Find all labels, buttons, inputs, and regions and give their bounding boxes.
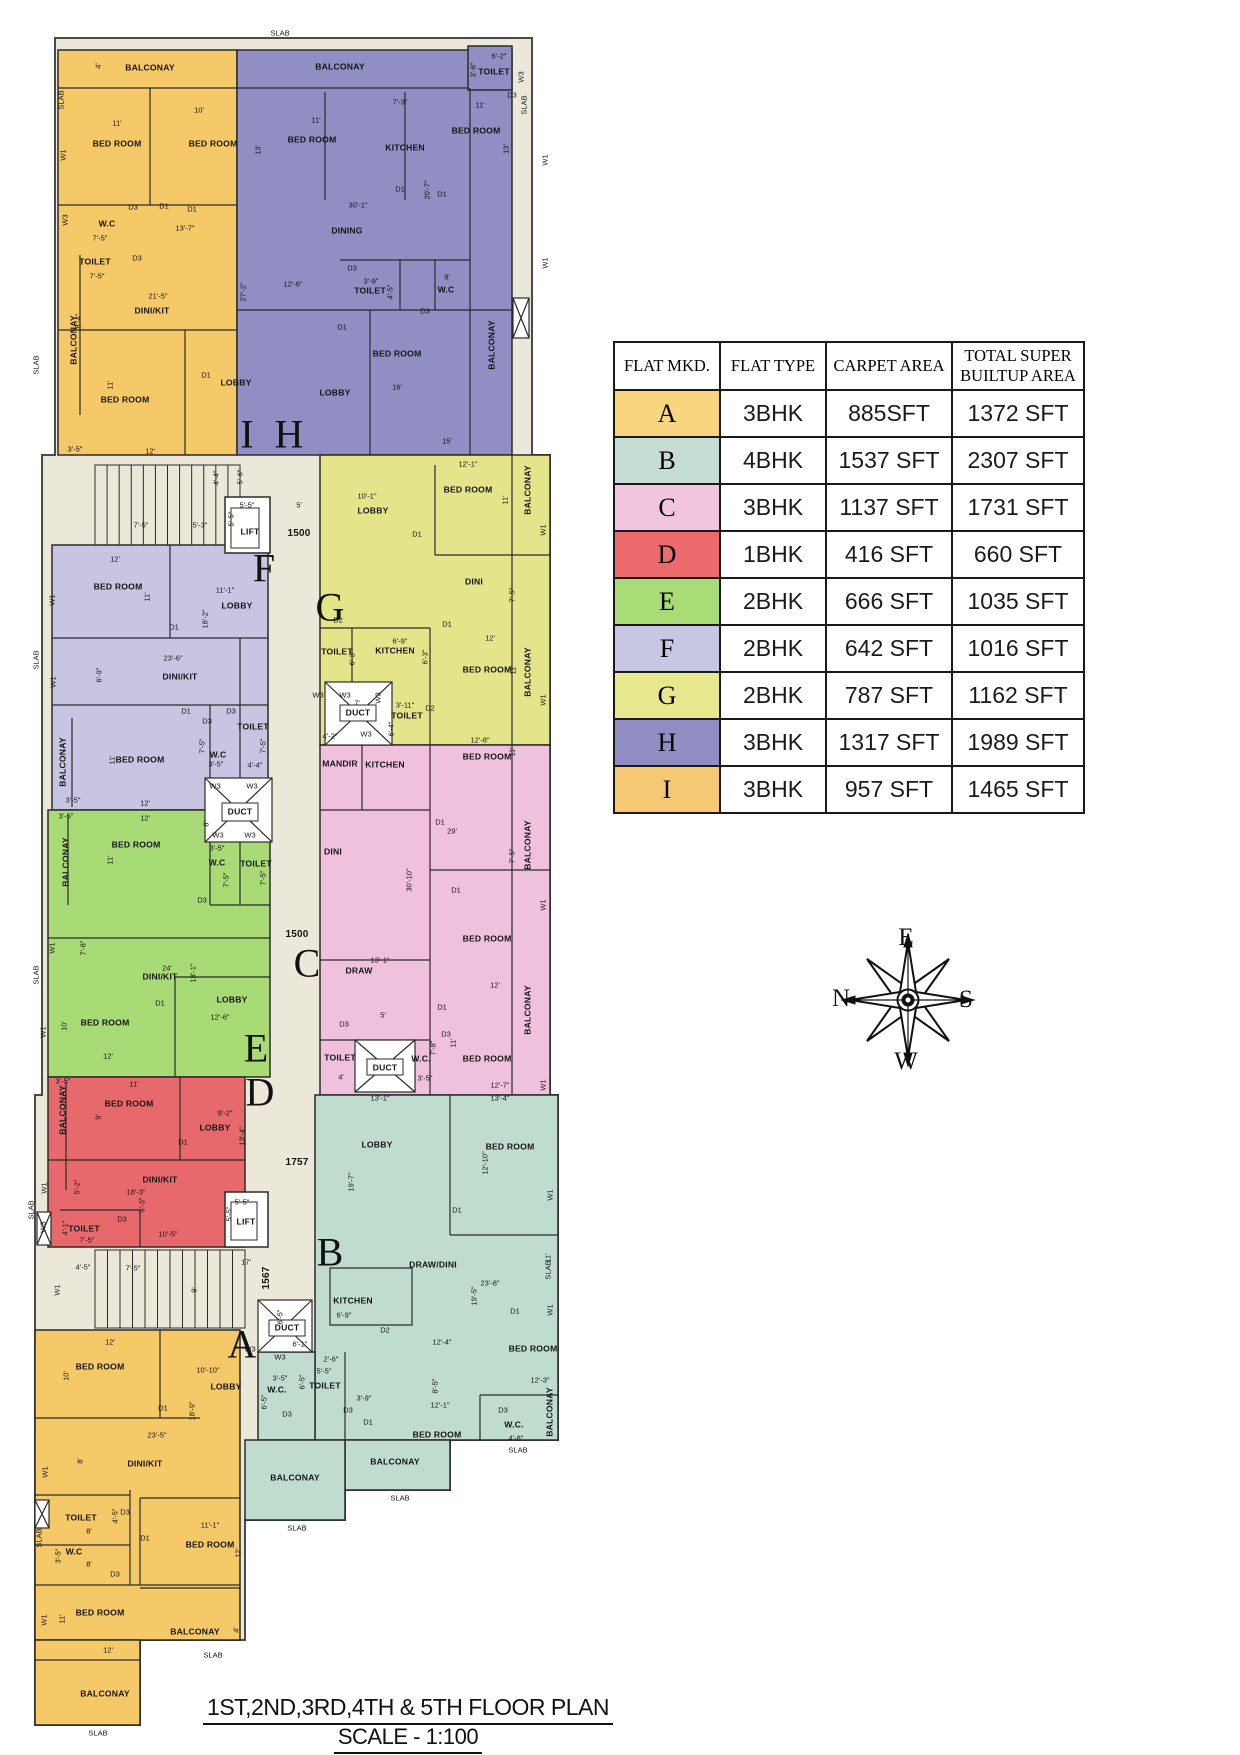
plan-label: 23'-5" xyxy=(147,1431,166,1439)
plan-label: W3 xyxy=(274,1353,285,1361)
plan-label: W.C. xyxy=(411,1055,430,1064)
plan-label: BALCONAY xyxy=(125,64,175,73)
cell-builtup-area: 1016 SFT xyxy=(952,625,1084,672)
table-row-flat-F: F2BHK642 SFT1016 SFT xyxy=(614,625,1084,672)
plan-label: 11' xyxy=(311,116,320,124)
plan-label: W1 xyxy=(53,1284,61,1295)
compass-south-label: S xyxy=(959,986,973,1014)
plan-label: W1 xyxy=(539,694,547,705)
plan-label: SLAB xyxy=(508,1446,527,1454)
plan-label: BED ROOM xyxy=(116,756,165,765)
plan-label: BED ROOM xyxy=(486,1143,535,1152)
plan-label: W1 xyxy=(39,1026,47,1037)
plan-label: 3'-5" xyxy=(66,796,81,804)
plan-label: BALCONAY xyxy=(524,820,533,870)
plan-label: BED ROOM xyxy=(76,1363,125,1372)
plan-label: 6'-9" xyxy=(337,1311,352,1319)
plan-label: LOBBY xyxy=(199,1124,230,1133)
plan-label: 12' xyxy=(145,447,155,455)
plan-label: 18'-3" xyxy=(126,1188,145,1196)
plan-label: BED ROOM xyxy=(509,1345,558,1354)
plan-label: 1500 xyxy=(285,930,308,940)
plan-label: 12'-1" xyxy=(430,1401,449,1409)
plan-label: 4' xyxy=(338,1073,344,1081)
cell-flat-mkd: B xyxy=(614,437,720,484)
plan-label: W3 xyxy=(244,831,255,839)
plan-label: 7'-5" xyxy=(259,739,267,754)
flat-letter-B: B xyxy=(317,1229,344,1276)
plan-label: D1 xyxy=(201,371,211,379)
flat-A-column xyxy=(35,1640,140,1725)
plan-label: W1 xyxy=(48,594,56,605)
cell-flat-mkd: E xyxy=(614,578,720,625)
plan-label: 18'-1" xyxy=(189,963,197,982)
plan-label: SLAB xyxy=(203,1651,222,1659)
cell-builtup-area: 660 SFT xyxy=(952,531,1084,578)
plan-label: D3 xyxy=(110,1570,120,1578)
plan-label: D2 xyxy=(380,1326,390,1334)
plan-label: 7'-5" xyxy=(80,1236,95,1244)
plan-label: BED ROOM xyxy=(463,935,512,944)
plan-label: LOBBY xyxy=(216,996,247,1005)
plan-label: 1500 xyxy=(287,529,310,539)
plan-label: W1 xyxy=(40,1182,48,1193)
plan-label: 5'-6" xyxy=(236,470,244,485)
plan-label: 12'-8" xyxy=(470,736,489,744)
plan-label: W.C xyxy=(438,286,455,295)
plan-label: W1 xyxy=(541,257,549,268)
plan-label: 3'-5" xyxy=(209,760,224,768)
plan-label: D3 xyxy=(507,91,517,99)
plan-label: 13'-4" xyxy=(490,1094,509,1102)
plan-label: D3 xyxy=(197,896,207,904)
plan-label: DINI/KIT xyxy=(127,1460,162,1469)
plan-label: DUCT xyxy=(228,808,253,817)
plan-label: BED ROOM xyxy=(105,1100,154,1109)
plan-label: D2 xyxy=(425,704,435,712)
cell-flat-type: 2BHK xyxy=(720,625,826,672)
plan-label: 6'-4" xyxy=(387,722,395,737)
plan-label: DINI/KIT xyxy=(142,1176,177,1185)
plan-label: 3'-9" xyxy=(357,1394,372,1402)
plan-label: 3'-5" xyxy=(418,1074,433,1082)
plan-label: W3 xyxy=(39,1221,47,1232)
plan-label: 7'-5" xyxy=(90,272,105,280)
header-builtup-area: TOTAL SUPER BUILTUP AREA xyxy=(952,342,1084,390)
plan-label: BED ROOM xyxy=(452,127,501,136)
flat-letter-G: G xyxy=(316,584,345,631)
plan-label: 6' xyxy=(202,821,210,827)
plan-label: 12' xyxy=(140,814,150,822)
plan-label: KITCHEN xyxy=(385,144,425,153)
plan-label: DINI/KIT xyxy=(162,673,197,682)
plan-label: 12' xyxy=(105,1338,115,1346)
cell-builtup-area: 1731 SFT xyxy=(952,484,1084,531)
cell-flat-type: 4BHK xyxy=(720,437,826,484)
plan-label: BALCONAY xyxy=(59,737,68,787)
plan-label: 4' xyxy=(232,1627,240,1633)
plan-label: 3'-5" xyxy=(68,445,83,453)
plan-label: 5'-3" xyxy=(193,521,208,529)
plan-label: SLAB xyxy=(270,29,289,37)
plan-label: D3 xyxy=(282,1410,292,1418)
plan-label: D3 xyxy=(128,203,138,211)
plan-label: LOBBY xyxy=(210,1383,241,1392)
plan-label: 6'-5" xyxy=(276,1310,284,1325)
plan-label: 3'-5" xyxy=(54,1549,62,1564)
plan-label: 30'-10" xyxy=(405,868,413,891)
cell-flat-type: 2BHK xyxy=(720,672,826,719)
plan-label: D1 xyxy=(337,323,347,331)
plan-label: SLAB xyxy=(287,1524,306,1532)
compass-east-label: E xyxy=(898,924,913,952)
flat-letter-I: I xyxy=(240,411,253,458)
table-row-flat-D: D1BHK416 SFT660 SFT xyxy=(614,531,1084,578)
plan-label: 7'-3" xyxy=(393,98,408,106)
cell-flat-type: 2BHK xyxy=(720,578,826,625)
plan-label: 11' xyxy=(106,380,114,389)
cell-flat-type: 3BHK xyxy=(720,719,826,766)
plan-label: 8' xyxy=(86,1527,92,1535)
plan-label: BED ROOM xyxy=(373,350,422,359)
plan-label: 11' xyxy=(106,855,114,864)
plan-label: W.C xyxy=(66,1548,83,1557)
cell-builtup-area: 2307 SFT xyxy=(952,437,1084,484)
plan-label: 16' xyxy=(392,383,402,391)
plan-label: D1 xyxy=(178,1138,188,1146)
plan-label: SLAB xyxy=(390,1494,409,1502)
plan-label: DINI/KIT xyxy=(142,973,177,982)
plan-label: W1 xyxy=(41,1466,49,1477)
plan-label: 12' xyxy=(110,555,120,563)
plan-label: LIFT xyxy=(241,528,260,537)
plan-label: 3'-5" xyxy=(210,844,225,852)
plan-label: 7'-8" xyxy=(79,941,87,956)
plan-label: BED ROOM xyxy=(93,140,142,149)
cell-flat-type: 3BHK xyxy=(720,766,826,813)
plan-label: 11' xyxy=(501,495,509,504)
plan-label: 23'-6" xyxy=(163,654,182,662)
plan-label: 12' xyxy=(485,634,495,642)
plan-label: W1 xyxy=(546,1189,554,1200)
cell-flat-mkd: F xyxy=(614,625,720,672)
plan-label: W1 xyxy=(539,899,547,910)
plan-label: 15' xyxy=(442,437,452,445)
flat-letter-E: E xyxy=(244,1025,268,1072)
plan-label: LIFT xyxy=(237,1218,256,1227)
plan-label: W.C xyxy=(209,859,226,868)
plan-label: 4'-5" xyxy=(386,285,394,300)
plan-label: 3'-6" xyxy=(469,63,477,78)
plan-label: 12' xyxy=(234,1548,242,1558)
plan-label: LOBBY xyxy=(220,379,251,388)
plan-label: 4'-5" xyxy=(111,1509,119,1524)
plan-label: D3 xyxy=(226,707,236,715)
plan-label: D1 xyxy=(412,530,422,538)
plan-label: 12' xyxy=(140,799,150,807)
plan-label: 6'-5" xyxy=(260,1395,268,1410)
cell-flat-mkd: G xyxy=(614,672,720,719)
plan-label: 10'-1" xyxy=(357,492,376,500)
plan-label: 4' xyxy=(94,63,102,69)
plan-label: 12'-6" xyxy=(283,280,302,288)
plan-label: 8' xyxy=(444,273,450,281)
plan-label: BED ROOM xyxy=(81,1019,130,1028)
plan-label: D1 xyxy=(158,1404,168,1412)
plan-label: W3 xyxy=(312,691,323,699)
plan-label: 11'-1" xyxy=(216,586,235,594)
plan-label: 7'-8" xyxy=(429,1041,437,1056)
plan-label: SLAB xyxy=(520,95,528,114)
plan-label: D1 xyxy=(140,1534,150,1542)
plan-label: BALCONAY xyxy=(546,1387,555,1437)
plan-label: BALCONAY xyxy=(524,465,533,515)
plan-label: BED ROOM xyxy=(94,583,143,592)
plan-label: 7'-5" xyxy=(198,739,206,754)
flat-table-body: A3BHK885SFT1372 SFTB4BHK1537 SFT2307 SFT… xyxy=(614,390,1084,813)
plan-label: BED ROOM xyxy=(463,666,512,675)
cell-carpet-area: 787 SFT xyxy=(826,672,952,719)
plan-label: BALCONAY xyxy=(270,1474,320,1483)
plan-label: 13'-1" xyxy=(370,1094,389,1102)
plan-label: 13' xyxy=(254,145,262,155)
plan-label: BALCONAY xyxy=(488,320,497,370)
plan-label: 5' xyxy=(380,1011,386,1019)
plan-label: BALCONAY xyxy=(370,1458,420,1467)
plan-label: BED ROOM xyxy=(413,1431,462,1440)
plan-label: W1 xyxy=(539,524,547,535)
cell-flat-mkd: D xyxy=(614,531,720,578)
plan-label: SLAB xyxy=(32,965,40,984)
plan-label: LOBBY xyxy=(357,507,388,516)
plan-label: BED ROOM xyxy=(463,753,512,762)
plan-label: W3 xyxy=(339,691,350,699)
plan-label: 13' xyxy=(502,144,510,154)
plan-label: D1 xyxy=(181,707,191,715)
plan-label: D3 xyxy=(441,1030,451,1038)
cell-builtup-area: 1035 SFT xyxy=(952,578,1084,625)
compass-north-label: N xyxy=(832,985,850,1013)
plan-label: W3 xyxy=(212,831,223,839)
plan-label: 11' xyxy=(475,101,484,109)
plan-label: 11' xyxy=(112,119,121,127)
plan-label: 19'-5" xyxy=(470,1286,478,1305)
plan-label: LOBBY xyxy=(361,1141,392,1150)
plan-label: D3 xyxy=(343,1406,353,1414)
plan-label: D1 xyxy=(452,1206,462,1214)
plan-label: 9'-3" xyxy=(138,1198,146,1213)
plan-label: 23'-8" xyxy=(480,1279,499,1287)
plan-label: BALCONAY xyxy=(70,315,79,365)
plan-label: D1 xyxy=(187,205,197,213)
plan-label: BALCONAY xyxy=(170,1628,220,1637)
plan-label: BALCONAY xyxy=(315,63,365,72)
plan-label: BED ROOM xyxy=(444,486,493,495)
plan-label: TOILET xyxy=(478,68,510,77)
plan-label: D1 xyxy=(437,1003,447,1011)
flat-letter-A: A xyxy=(228,1321,257,1368)
flat-letter-F: F xyxy=(253,545,275,592)
cell-carpet-area: 885SFT xyxy=(826,390,952,437)
table-row-flat-G: G2BHK787 SFT1162 SFT xyxy=(614,672,1084,719)
plan-label: W3 xyxy=(360,730,371,738)
cell-flat-mkd: H xyxy=(614,719,720,766)
cell-flat-type: 1BHK xyxy=(720,531,826,578)
table-row-flat-H: H3BHK1317 SFT1989 SFT xyxy=(614,719,1084,766)
plan-label: D1 xyxy=(159,202,169,210)
cell-carpet-area: 1317 SFT xyxy=(826,719,952,766)
plan-label: 4'-2" xyxy=(323,732,338,740)
plan-label: D3 xyxy=(498,1406,508,1414)
cell-builtup-area: 1372 SFT xyxy=(952,390,1084,437)
plan-label: W3 xyxy=(246,782,257,790)
plan-label: KITCHEN xyxy=(365,761,405,770)
table-row-flat-A: A3BHK885SFT1372 SFT xyxy=(614,390,1084,437)
plan-label: D3 xyxy=(132,254,142,262)
plan-label: 6'-1" xyxy=(293,1340,308,1348)
plan-label: BALCONAY xyxy=(524,985,533,1035)
plan-label: BED ROOM xyxy=(189,140,238,149)
plan-label: W.C xyxy=(210,751,227,760)
plan-label: SLAB xyxy=(57,90,65,109)
plan-label: TOILET xyxy=(237,723,269,732)
plan-label: TOILET xyxy=(65,1514,97,1523)
plan-label: DINING xyxy=(331,227,362,236)
plan-label: 10' xyxy=(62,1371,70,1381)
plan-label: 6'-3" xyxy=(348,651,356,666)
plan-label: 7'-5" xyxy=(134,521,149,529)
plan-label: LOBBY xyxy=(319,389,350,398)
plan-label: 6'-2" xyxy=(492,52,507,60)
plan-label: 12'-4" xyxy=(432,1338,451,1346)
plan-label: BALCONAY xyxy=(524,647,533,697)
plan-label: BED ROOM xyxy=(463,1055,512,1064)
plan-label: D1 xyxy=(395,185,405,193)
table-row-flat-E: E2BHK666 SFT1035 SFT xyxy=(614,578,1084,625)
plan-label: 12'-10" xyxy=(481,1151,489,1174)
plan-label: 7'-5" xyxy=(508,588,516,603)
cell-flat-mkd: I xyxy=(614,766,720,813)
plan-scale: SCALE - 1:100 xyxy=(334,1724,482,1754)
plan-label: 11' xyxy=(544,1253,552,1262)
plan-label: 7'-5" xyxy=(222,873,230,888)
cell-carpet-area: 416 SFT xyxy=(826,531,952,578)
plan-label: 11'-1" xyxy=(201,1521,220,1529)
plan-label: 12' xyxy=(490,981,500,989)
plan-label: BALCONAY xyxy=(80,1690,130,1699)
plan-label: 11' xyxy=(508,747,516,756)
cell-flat-type: 3BHK xyxy=(720,390,826,437)
flat-H-region xyxy=(237,50,512,455)
plan-label: 13'-7" xyxy=(175,224,194,232)
cell-carpet-area: 666 SFT xyxy=(826,578,952,625)
plan-label: W3 xyxy=(517,71,525,82)
plan-title: 1ST,2ND,3RD,4TH & 5TH FLOOR PLAN xyxy=(203,1694,613,1725)
plan-label: W.C. xyxy=(267,1386,286,1395)
plan-label: 17' xyxy=(241,1258,251,1266)
plan-label: W1 xyxy=(48,942,56,953)
table-header-row: FLAT MKD. FLAT TYPE CARPET AREA TOTAL SU… xyxy=(614,342,1084,390)
flat-letter-H: H xyxy=(275,411,304,458)
header-carpet-area: CARPET AREA xyxy=(826,342,952,390)
plan-label: 9' xyxy=(190,1287,198,1293)
plan-label: W3 xyxy=(209,782,220,790)
plan-label: 6'-5" xyxy=(298,1375,306,1390)
plan-label: 5'-5" xyxy=(240,501,255,509)
plan-label: TOILET xyxy=(79,258,111,267)
plan-label: BED ROOM xyxy=(101,396,150,405)
plan-label: 7'-5" xyxy=(508,849,516,864)
cell-builtup-area: 1162 SFT xyxy=(952,672,1084,719)
plan-label: D3 xyxy=(120,1508,130,1516)
plan-label: 6'-9" xyxy=(393,637,408,645)
plan-label: 3'-9" xyxy=(364,277,379,285)
table-row-flat-C: C3BHK1137 SFT1731 SFT xyxy=(614,484,1084,531)
plan-label: DINI xyxy=(324,848,342,857)
plan-label: DUCT xyxy=(275,1324,300,1333)
header-flat-type: FLAT TYPE xyxy=(720,342,826,390)
plan-label: D1 xyxy=(442,620,452,628)
plan-label: 11' xyxy=(449,1038,457,1047)
plan-label: 11' xyxy=(58,1614,66,1623)
plan-label: 5'-5" xyxy=(225,1207,233,1222)
plan-label: 6'-9" xyxy=(95,668,103,683)
flat-area-table: FLAT MKD. FLAT TYPE CARPET AREA TOTAL SU… xyxy=(613,341,1085,814)
plan-label: 13'-1" xyxy=(370,956,389,964)
plan-label: 7'-5" xyxy=(93,234,108,242)
plan-label: D1 xyxy=(169,623,179,631)
plan-label: W.C xyxy=(99,220,116,229)
plan-label: 4'-5" xyxy=(76,1263,91,1271)
plan-label: 20'-7" xyxy=(423,180,431,199)
plan-label: W1 xyxy=(541,154,549,165)
plan-label: 7'-5" xyxy=(126,1264,141,1272)
plan-label: SLAB xyxy=(32,650,40,669)
plan-label: 4'-8" xyxy=(509,1434,524,1442)
plan-label: 8' xyxy=(86,1560,92,1568)
plan-label: SLAB xyxy=(544,1260,552,1279)
plan-label: D1 xyxy=(435,818,445,826)
plan-label: 11' xyxy=(129,1080,138,1088)
plan-label: 5'-5" xyxy=(235,1198,250,1206)
plan-label: D1 xyxy=(510,1307,520,1315)
plan-label: BALCONAY xyxy=(62,837,71,887)
cell-flat-type: 3BHK xyxy=(720,484,826,531)
plan-label: W1 xyxy=(59,149,67,160)
plan-label: SLAB xyxy=(27,1200,35,1219)
plan-label: DUCT xyxy=(373,1064,398,1073)
plan-label: DINI/KIT xyxy=(134,307,169,316)
flat-F-region xyxy=(52,545,268,810)
plan-label: 10' xyxy=(194,106,204,114)
plan-label: W1 xyxy=(546,1304,554,1315)
cell-flat-mkd: C xyxy=(614,484,720,531)
plan-label: 18'-9" xyxy=(188,1401,196,1420)
plan-label: 12' xyxy=(103,1646,113,1654)
plan-label: 10'-10" xyxy=(196,1366,219,1374)
plan-label: 13'-4" xyxy=(238,1126,246,1145)
plan-label: D1 xyxy=(451,886,461,894)
plan-label: D3 xyxy=(117,1215,127,1223)
plan-label: 2'-6" xyxy=(324,1355,339,1363)
plan-label: 24' xyxy=(162,964,172,972)
cell-builtup-area: 1989 SFT xyxy=(952,719,1084,766)
flat-letter-D: D xyxy=(246,1069,275,1116)
plan-label: 30'-1" xyxy=(348,201,367,209)
plan-label: 1757 xyxy=(285,1158,308,1168)
cell-carpet-area: 957 SFT xyxy=(826,766,952,813)
plan-label: D3 xyxy=(339,1020,349,1028)
